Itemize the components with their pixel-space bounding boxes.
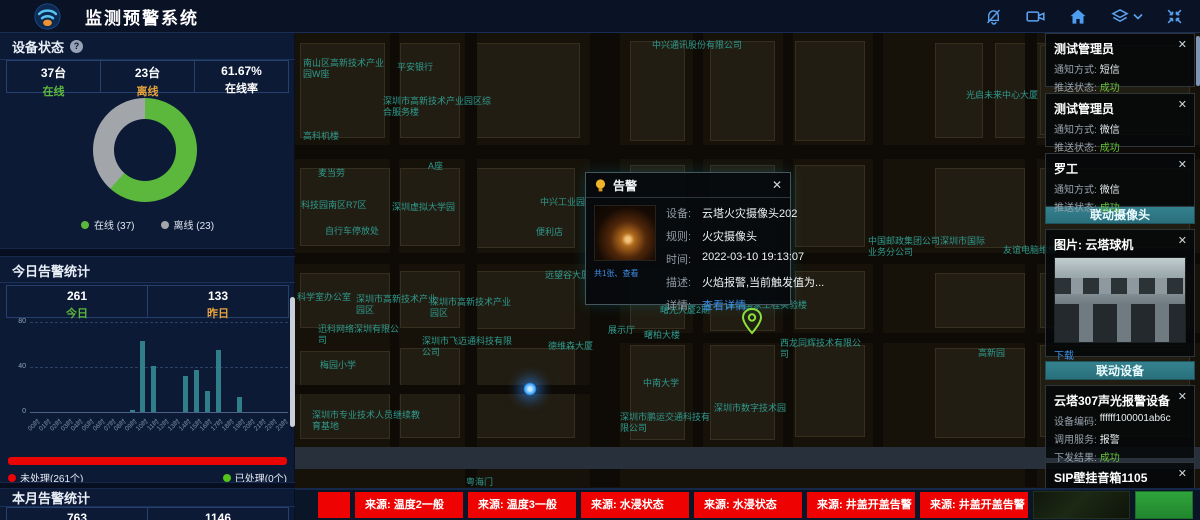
map-block [710,345,775,440]
notification-row: 通知方式:微信 [1054,181,1186,196]
row-label: 设备编码: [1054,413,1097,428]
popup-detail-row: 详情:查看详情 [666,297,824,313]
legend-label: 离线 (23) [174,217,215,232]
row-label: 推送状态: [1054,79,1097,94]
legend-item: 在线 (37) [81,217,135,232]
map-label: 深圳市专业技术人员继续教育基地 [312,410,424,432]
map-label: 中南大学 [643,378,679,389]
map-label: 西龙同辉技术有限公司 [780,338,862,360]
linked-devices-header: 联动设备 [1045,361,1195,380]
linked-device-card: ✕云塔307声光报警设备设备编码:ffffff100001ab6c调用服务:报警… [1045,385,1195,459]
home-icon[interactable] [1068,7,1088,27]
left-stats-panel: 设备状态 ? 37台在线23台离线61.67%在线率 在线 (37)离线 (23… [0,33,295,520]
popup-row-label: 详情: [666,297,702,313]
map-block [630,41,685,141]
page-title: 监测预警系统 [85,4,199,29]
alert-popup-rows: 设备:云塔火灾摄像头202规则:火灾摄像头时间:2022-03-10 19:13… [656,205,824,320]
map-label: 远望谷大厦 [545,270,590,281]
map-label: 深圳市高新技术产业园区 [356,294,438,316]
y-tick-label: 0 [4,408,26,415]
row-value: 微信 [1100,181,1120,196]
right-column-scrollbar[interactable] [1196,36,1200,86]
app-logo-icon [34,3,61,30]
map-label: 中国邮政集团公司深圳市国际业务分公司 [868,236,986,258]
header-icon-bar [984,0,1184,33]
map-label: 梅园小学 [320,360,356,371]
alert-source-card[interactable]: 来源: 水浸状态 [581,492,689,518]
legend-dot-icon [81,221,89,229]
stat-cell: 763 [7,508,147,520]
map-block [710,41,775,141]
map-label: 科学室办公室 [297,292,351,303]
map-road [295,385,600,394]
bar [205,391,210,412]
notification-row: 通知方式:短信 [1054,61,1186,76]
map-label: 迅科网络深圳有限公司 [318,324,400,346]
donut-legend: 在线 (37)离线 (23) [0,217,295,232]
notification-card: ✕罗工通知方式:微信推送状态:成功 [1045,153,1195,207]
map-block [795,41,865,141]
map-label: 自行车停放处 [325,226,379,237]
bar [130,410,135,412]
alert-source-card[interactable]: 来源: 温度2一般 [355,492,463,518]
stat-label: 在线率 [195,80,288,96]
row-value: 短信 [1100,61,1120,76]
chevron-down-icon [1133,13,1143,20]
row-label: 通知方式: [1054,121,1097,136]
download-link[interactable]: 下载 [1054,347,1186,362]
notification-card: ✕测试管理员通知方式:短信推送状态:成功 [1045,33,1195,87]
device-status-title: 设备状态 [12,37,64,56]
y-tick-label: 40 [4,363,26,370]
popup-row-value: 云塔火灾摄像头202 [702,205,797,221]
green-snapshot-thumbnail[interactable] [1135,491,1193,519]
stat-cell: 133昨日 [147,286,288,317]
legend-item: 离线 (23) [161,217,215,232]
today-alarm-stats: 261今日133昨日 [6,285,289,318]
stat-cell: 61.67%在线率 [194,61,288,92]
close-icon[interactable]: ✕ [1178,38,1187,51]
bar [216,350,221,412]
alert-source-card[interactable]: 来源: 井盖开盖告警 [920,492,1028,518]
close-icon[interactable]: ✕ [1178,158,1187,171]
stat-cell: 261今日 [7,286,147,317]
bar [183,376,188,412]
alert-popup: 告警 ✕ 共1张、查看 设备:云塔火灾摄像头202规则:火灾摄像头时间:2022… [585,172,791,305]
row-label: 调用服务: [1054,431,1097,446]
bar [194,370,199,412]
row-label: 通知方式: [1054,61,1097,76]
stat-value: 61.67% [195,64,288,78]
monitoring-dashboard: 南山区高新技术产业园W座平安银行深圳市高新技术产业园区综合服务楼高科机楼中兴通讯… [0,0,1200,520]
notification-row: 推送状态:成功 [1054,139,1186,154]
map-label: 平安银行 [397,62,433,73]
map-block [400,43,460,138]
popup-row: 规则:火灾摄像头 [666,228,824,244]
device-status-stats: 37台在线23台离线61.67%在线率 [6,60,289,93]
alert-source-cards: 来源: 温度2一般来源: 温度3一般来源: 水浸状态来源: 水浸状态来源: 井盖… [355,492,1028,518]
today-alarm-header: 今日告警统计 [0,259,295,283]
map-label: 深圳市高新技术产业园区 [430,297,512,319]
bar [140,341,145,412]
stat-cell: 37台在线 [7,61,100,92]
stat-cell: 23台离线 [100,61,194,92]
hourly-alarm-bar-chart: 0408000时01时02时03时04时05时06时07时08时09时10时11… [0,322,295,452]
month-alarm-stats: 7631146 [6,507,289,520]
linked-camera-card: ✕ 图片: 云塔球机 下载 [1045,229,1195,357]
view-details-link[interactable]: 查看详情 [702,297,746,313]
notification-title: 罗工 [1054,160,1186,177]
alert-source-card[interactable]: 来源: 井盖开盖告警 [807,492,915,518]
map-label: 便利店 [536,227,563,238]
row-label: 推送状态: [1054,139,1097,154]
fullscreen-icon[interactable] [1165,7,1184,26]
notification-row: 推送状态:成功 [1054,79,1186,94]
popup-row-label: 时间: [666,251,702,267]
row-value: 成功 [1100,199,1120,214]
stat-label: 离线 [101,83,194,99]
map-label: 粤海门 [466,477,493,488]
popup-row-label: 规则: [666,228,702,244]
map-block [935,348,1025,438]
right-notification-column: 联动摄像头 ✕ 图片: 云塔球机 下载 联动设备 ✕测试管理员通知方式:短信推送… [1045,33,1195,520]
row-value: 微信 [1100,121,1120,136]
row-value: 成功 [1100,79,1120,94]
notification-title: 测试管理员 [1054,40,1186,57]
row-value: 报警 [1100,431,1120,446]
map-block [475,43,580,138]
month-alarm-header: 本月告警统计 [0,489,295,507]
close-icon[interactable]: ✕ [772,178,782,192]
stat-label: 昨日 [148,305,288,321]
grid-line [30,367,288,368]
blue-glow-marker[interactable] [523,382,537,396]
close-icon[interactable]: ✕ [1178,234,1187,247]
bell-off-icon[interactable] [984,7,1003,26]
month-alarm-title: 本月告警统计 [12,488,90,507]
map-label: 高新园 [978,348,1005,359]
close-icon[interactable]: ✕ [1178,467,1187,480]
map-label: 深圳市数字技术园 [714,403,786,414]
popup-row: 设备:云塔火灾摄像头202 [666,205,824,221]
layers-icon[interactable] [1110,7,1143,27]
y-tick-label: 80 [4,318,26,325]
stat-value: 1146 [148,511,288,520]
camera-snapshot-image[interactable] [1054,257,1186,343]
video-camera-icon[interactable] [1025,6,1046,27]
alert-popup-titlebar: 告警 ✕ [586,173,790,198]
map-label: 科技园南区R7区 [301,200,367,211]
red-dot-icon [8,474,16,482]
popup-row-value: 2022-03-10 19:13:07 [702,251,804,267]
notification-title: 测试管理员 [1054,100,1186,117]
alert-card-truncated[interactable] [318,492,350,518]
map-label: 麦当劳 [318,168,345,179]
notification-card: ✕测试管理员通知方式:微信推送状态:成功 [1045,93,1195,147]
legend-label: 在线 (37) [94,217,135,232]
help-icon[interactable]: ? [70,40,83,53]
device-row: 设备编码:ffffff100001ab6c [1054,413,1186,428]
header: 监测预警系统 [0,0,1200,33]
stat-cell: 1146 [147,508,288,520]
popup-row: 描述:火焰报警,当前触发值为... [666,274,824,290]
row-label: 通知方式: [1054,181,1097,196]
map-label: 深圳市飞迈通科技有限公司 [422,336,514,358]
map-label: 曙柏大楼 [644,330,680,341]
fire-snapshot-thumbnail[interactable] [594,205,656,261]
stat-value: 23台 [101,64,194,81]
alert-source-card[interactable]: 来源: 温度3一般 [468,492,576,518]
stat-value: 763 [7,511,147,520]
today-alarm-title: 今日告警统计 [12,261,90,280]
grid-line [30,412,288,413]
popup-row-label: 描述: [666,274,702,290]
bar [237,397,242,412]
camera-thumbnail[interactable] [1033,491,1130,519]
grid-line [30,322,288,323]
stat-label: 今日 [7,305,147,321]
stat-label: 在线 [7,83,100,99]
popup-row-value: 火焰报警,当前触发值为... [702,274,824,290]
notification-row: 推送状态:成功 [1054,199,1186,214]
stat-value: 37台 [7,64,100,81]
map-label: A座 [428,161,443,172]
row-value: ffffff100001ab6c [1100,413,1171,428]
thumbnail-caption[interactable]: 共1张、查看 [594,268,656,279]
map-label: 德维森大厦 [548,341,593,352]
map-block [935,273,1025,328]
row-value: 成功 [1100,139,1120,154]
device-status-header: 设备状态 ? [0,33,295,60]
popup-row-label: 设备: [666,205,702,221]
alert-source-card[interactable]: 来源: 水浸状态 [694,492,802,518]
map-label: 中兴工业园 [540,197,585,208]
alert-popup-body: 共1张、查看 设备:云塔火灾摄像头202规则:火灾摄像头时间:2022-03-1… [586,198,790,327]
popup-row: 时间:2022-03-10 19:13:07 [666,251,824,267]
legend-dot-icon [161,221,169,229]
popup-row-value: 火灾摄像头 [702,228,757,244]
map-label: 深圳虚拟大学园 [392,202,455,213]
unprocessed-progress-bar [8,457,287,465]
green-dot-icon [223,474,231,482]
donut-hole [114,119,176,181]
map-label: 深圳市高新技术产业园区综合服务楼 [383,96,491,118]
map-label: 高科机楼 [303,131,339,142]
alert-popup-title: 告警 [613,177,766,194]
device-title: 云塔307声光报警设备 [1054,392,1186,409]
device-row: 调用服务:报警 [1054,431,1186,446]
camera-image-label: 图片: 云塔球机 [1054,236,1186,253]
left-panel-scrollbar[interactable] [290,297,295,427]
map-label: 中兴通讯股份有限公司 [652,40,747,51]
close-icon[interactable]: ✕ [1178,390,1187,403]
section-divider [0,248,295,257]
map-label: 深圳市鹏运交通科技有限公司 [620,412,718,434]
bottom-alert-strip: 来源: 温度2一般来源: 温度3一般来源: 水浸状态来源: 水浸状态来源: 井盖… [295,488,1200,520]
alarm-lamp-icon [594,178,607,193]
stat-value: 133 [148,289,288,303]
row-label: 推送状态: [1054,199,1097,214]
map-label: 南山区高新技术产业园W座 [303,58,391,80]
bar [151,366,156,412]
close-icon[interactable]: ✕ [1178,98,1187,111]
device-title: SIP壁挂音箱1105 [1054,469,1186,486]
stat-value: 261 [7,289,147,303]
notification-row: 通知方式:微信 [1054,121,1186,136]
